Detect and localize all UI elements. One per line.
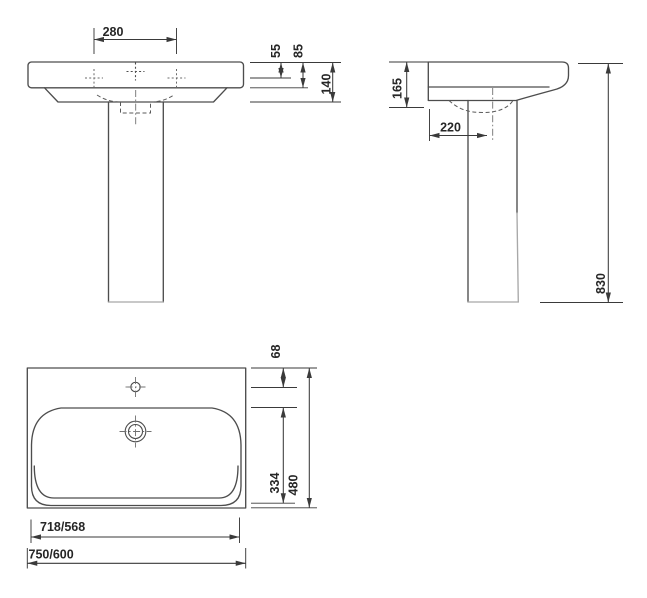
dim-label-480: 480: [287, 475, 301, 496]
side-dim-165: 165: [389, 62, 428, 108]
dim-label-55: 55: [269, 44, 283, 58]
plan-view: 68 334 480 718/568 750/600: [27, 345, 317, 569]
front-dim-85: 85: [292, 44, 306, 88]
technical-drawing-page: 280 55 85 140: [0, 0, 647, 598]
front-hidden-bowl-curve-right: [150, 95, 174, 102]
side-hidden-drain-arc: [449, 101, 513, 113]
plan-tap-hole-icon: [126, 377, 146, 397]
dim-label-140: 140: [320, 74, 334, 95]
plan-drain-hole-icon: [120, 416, 152, 448]
front-dim-140: 140: [320, 63, 334, 103]
side-view: 165 220 830: [389, 62, 623, 303]
washbasin-drawing-svg: 280 55 85 140: [0, 0, 647, 598]
front-view: 280 55 85 140: [28, 25, 341, 302]
front-dim-280: 280: [94, 25, 177, 54]
tap-hole-center-marker-icon: [127, 63, 145, 81]
side-pedestal-back-edge-lower: [517, 213, 518, 302]
dim-label-220: 220: [440, 121, 461, 135]
dim-label-280: 280: [103, 25, 124, 39]
dim-label-85: 85: [292, 44, 306, 58]
front-dim-55: 55: [269, 44, 283, 78]
side-basin-outline: [428, 62, 568, 101]
dim-label-165: 165: [391, 78, 405, 99]
plan-bowl-outer-outline: [32, 408, 242, 506]
dim-label-334: 334: [268, 473, 282, 494]
dim-label-830: 830: [594, 273, 608, 294]
plan-dim-480: 480: [287, 368, 310, 508]
plan-dim-718-568: 718/568: [31, 518, 240, 544]
side-dim-220: 220: [430, 109, 488, 141]
dim-label-718-568: 718/568: [40, 520, 85, 534]
plan-dim-334: 334: [268, 408, 283, 504]
tap-hole-right-marker-icon: [168, 69, 186, 87]
dim-label-750-600: 750/600: [29, 548, 74, 562]
plan-dim-750-600: 750/600: [27, 548, 245, 569]
tap-hole-left-marker-icon: [85, 69, 103, 87]
front-basin-rim-outline: [28, 62, 244, 88]
front-hidden-bowl-curve-left: [97, 95, 121, 102]
plan-bowl-inner-outline: [34, 466, 238, 498]
dim-label-68: 68: [269, 345, 283, 359]
side-dim-830: 830: [540, 64, 623, 303]
plan-dim-68: 68: [269, 345, 283, 388]
